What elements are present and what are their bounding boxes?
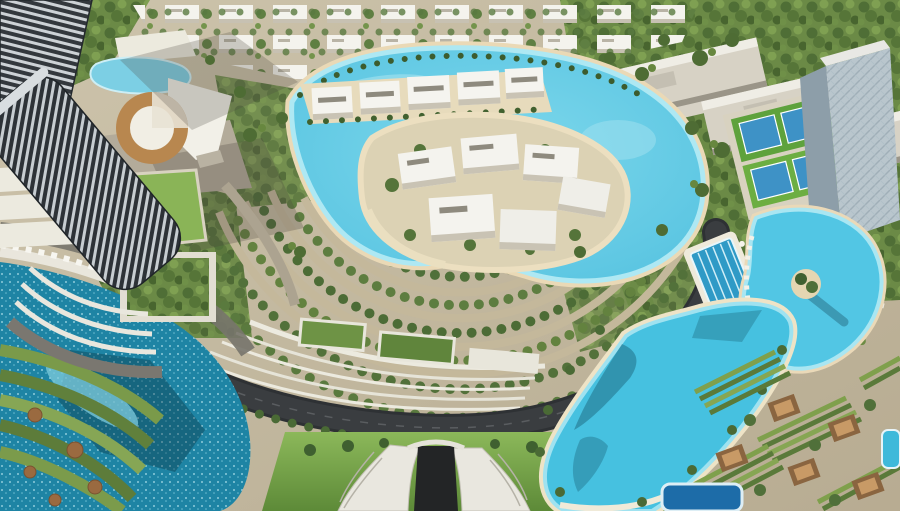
central-crystal-lagoon — [292, 48, 704, 281]
lagoon-island-mansions — [361, 115, 628, 270]
aerial-render — [0, 0, 900, 511]
